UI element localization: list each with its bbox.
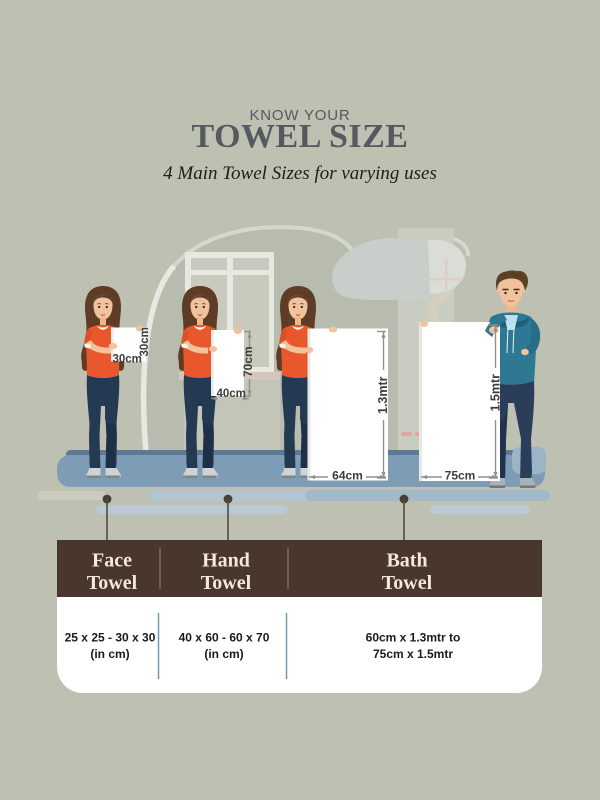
svg-text:60cm x 1.3mtr to: 60cm x 1.3mtr to [366,631,461,645]
svg-text:25 x 25 - 30 x 30: 25 x 25 - 30 x 30 [65,631,156,645]
svg-text:64cm: 64cm [332,469,363,483]
svg-text:1.3mtr: 1.3mtr [376,376,390,414]
svg-text:40cm: 40cm [217,388,246,400]
svg-text:30cm: 30cm [113,354,142,366]
svg-text:Towel: Towel [87,572,138,594]
svg-text:75cm x 1.5mtr: 75cm x 1.5mtr [373,647,453,661]
svg-text:75cm: 75cm [445,469,476,483]
svg-text:Face: Face [92,550,132,572]
svg-text:40 x 60 - 60 x 70: 40 x 60 - 60 x 70 [179,631,270,645]
svg-text:(in cm): (in cm) [90,647,129,661]
svg-text:30cm: 30cm [139,327,151,356]
svg-text:1.5mtr: 1.5mtr [489,374,503,412]
svg-text:Towel: Towel [201,572,252,594]
svg-text:Hand: Hand [202,550,250,572]
svg-text:4 Main Towel Sizes for varying: 4 Main Towel Sizes for varying uses [163,163,437,184]
svg-text:TOWEL SIZE: TOWEL SIZE [192,118,409,155]
svg-text:(in cm): (in cm) [204,647,243,661]
svg-text:Bath: Bath [386,550,427,572]
svg-text:Towel: Towel [382,572,433,594]
svg-text:70cm: 70cm [241,346,255,377]
